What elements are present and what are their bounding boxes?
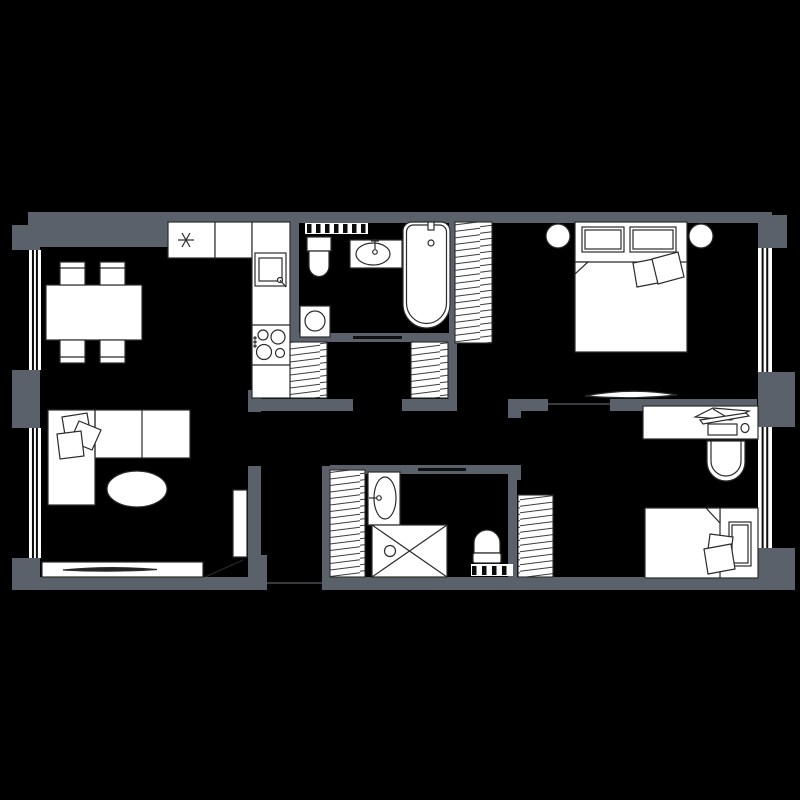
wall-top-left-thick	[28, 223, 168, 247]
dining-chair-4	[100, 340, 125, 363]
window-dining-band	[29, 250, 41, 370]
cabinet-bath2	[330, 470, 365, 577]
closet-hall-left	[290, 342, 327, 398]
wardrobe-bedroom2-hatch	[518, 495, 553, 577]
wall-right-bottom-corner	[758, 548, 795, 590]
bed-single	[645, 508, 758, 578]
floor-plan-svg	[0, 0, 800, 800]
bed-single-part	[704, 544, 735, 574]
sofa-part	[57, 431, 84, 459]
bathtub-part	[403, 222, 450, 328]
mouse	[741, 424, 749, 433]
wall-bottom-right	[322, 577, 772, 590]
towel-rail-bath1	[305, 223, 368, 234]
towel-rail-bath1-tick	[343, 224, 348, 233]
fridge	[168, 222, 215, 258]
towel-rail-bath1-tick	[361, 224, 366, 233]
towel-rail-bath2-tick	[482, 566, 487, 575]
towel-rail-bath1-tick	[352, 224, 357, 233]
shower-part	[385, 546, 396, 557]
dining-table	[46, 285, 142, 340]
cooktop-part	[257, 345, 272, 360]
towel-rail-bath2	[471, 564, 513, 576]
closet-hall-left-hatch	[290, 342, 327, 398]
cooktop-part	[258, 330, 268, 340]
wall-right-pier	[758, 372, 795, 427]
towel-rail-bath1-tick	[307, 224, 312, 233]
wall-closet-east	[448, 342, 457, 399]
dining-chair-1-part	[60, 262, 85, 285]
wall-top	[28, 212, 772, 223]
wall-top-right-corner	[758, 215, 787, 248]
toilet-bath2-part	[474, 530, 500, 553]
towel-rail-bath2-tick	[492, 566, 497, 575]
wall-left-top-block	[12, 225, 40, 250]
dining-chair-3-part	[60, 340, 85, 363]
kitchen-counter-part	[252, 222, 290, 398]
toilet-bath1-part	[307, 237, 331, 251]
washing-machine-part	[305, 311, 325, 331]
sink-vanity-bath1-part	[373, 250, 378, 255]
sink-vanity-bath2-part	[377, 496, 382, 501]
coffee-table	[107, 471, 167, 507]
shower	[372, 525, 447, 577]
wall-kitchen-bath	[290, 222, 299, 342]
wall-bottom-left	[12, 577, 267, 590]
bathtub	[403, 222, 450, 328]
keyboard-part	[708, 424, 737, 435]
nightstand-left-part	[546, 224, 570, 248]
washing-machine	[300, 306, 330, 337]
tv-console	[42, 562, 203, 577]
kitchen-sink	[255, 253, 286, 287]
wardrobe-bedroom2	[518, 495, 553, 577]
dining-chair-1	[60, 262, 85, 285]
coffee-table-part	[107, 471, 167, 507]
window-bedroom2	[758, 427, 772, 548]
cooktop-part	[254, 337, 256, 339]
cooktop-part	[254, 341, 256, 343]
nightstand-left	[546, 224, 570, 248]
wall-bed1-stub	[508, 399, 521, 418]
window-bedroom2-band	[758, 427, 772, 548]
bed-double-part	[582, 227, 624, 252]
wall-entry-left-jamb	[248, 555, 267, 590]
towel-rail-bath1-tick	[325, 224, 330, 233]
sink-vanity-bath2	[368, 472, 400, 525]
bed-double	[575, 222, 687, 352]
wall-bath2-east	[508, 473, 517, 577]
bathtub-part	[428, 240, 434, 246]
door-leaf-living-part	[233, 490, 247, 557]
dining-chair-3	[60, 340, 85, 363]
toilet-bath2	[473, 530, 501, 563]
wall-living-hall	[248, 466, 261, 560]
closet-hall-right	[411, 342, 448, 398]
cooktop-part	[271, 330, 285, 344]
toilet-bath2-part	[473, 553, 501, 563]
desk-chair	[707, 441, 745, 481]
toilet-bath1-part	[309, 251, 329, 277]
mouse-part	[741, 424, 749, 433]
floor-plan	[0, 0, 800, 800]
bed-double-part	[630, 227, 676, 252]
dining-chair-2	[100, 262, 125, 285]
kitchen-counter-part	[215, 222, 252, 258]
wall-left-pier	[12, 370, 40, 428]
cooktop-part	[276, 349, 285, 358]
keyboard	[708, 424, 737, 435]
wall-hall-north-west	[248, 399, 353, 411]
closet-hall-right-hatch	[411, 342, 448, 398]
window-bedroom1-band	[758, 248, 772, 372]
dining-chair-2-part	[100, 262, 125, 285]
dining-chair-4-part	[100, 340, 125, 363]
dining-table-part	[46, 285, 142, 340]
toilet-bath1	[307, 237, 331, 277]
desk-chair-part	[707, 441, 745, 481]
wardrobe-hall-tall	[455, 222, 492, 343]
window-dining	[29, 250, 41, 370]
window-living-band	[29, 428, 41, 558]
window-bedroom1	[758, 248, 772, 372]
nightstand-right-part	[689, 224, 713, 248]
window-living	[29, 428, 41, 558]
bathtub-part	[428, 222, 434, 230]
towel-rail-bath2-tick	[502, 566, 507, 575]
cooktop-part	[254, 345, 256, 347]
towel-rail-bath1-tick	[334, 224, 339, 233]
wardrobe-hall-tall-hatch	[455, 222, 492, 343]
towel-rail-bath1-tick	[316, 224, 321, 233]
cabinet-bath2-hatch	[330, 470, 365, 577]
nightstand-right	[689, 224, 713, 248]
wall-bath2-west	[322, 466, 330, 577]
wall-hall-north-mid	[402, 399, 457, 411]
towel-rail-bath2-tick	[472, 566, 477, 575]
sink-vanity-bath1	[350, 239, 402, 268]
